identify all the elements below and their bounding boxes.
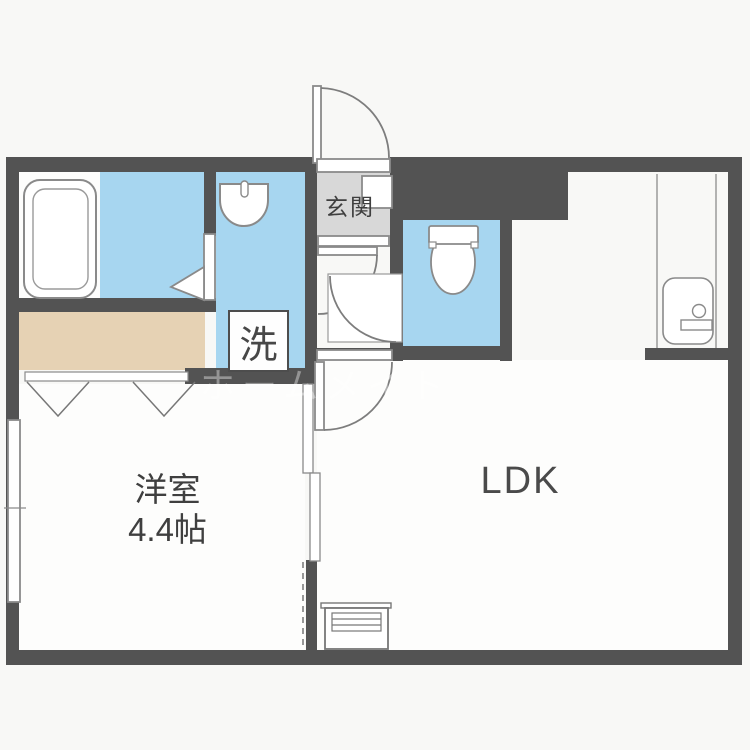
entrance-door-swing-arc bbox=[321, 88, 389, 159]
bathtub-icon bbox=[24, 180, 96, 298]
watermark: ホームメイト bbox=[200, 358, 451, 409]
western-room-label: 洋室 4.4帖 bbox=[95, 468, 240, 552]
western-room-size: 4.4帖 bbox=[128, 510, 207, 550]
toilet-tab-right bbox=[471, 242, 478, 248]
window bbox=[8, 420, 20, 602]
western-room-name: 洋室 bbox=[135, 470, 201, 510]
closet-folding-door-2 bbox=[133, 382, 195, 416]
bathroom-door-swing bbox=[171, 267, 204, 300]
hall-door-leaf bbox=[318, 247, 377, 255]
floor-plan: 玄関 洗 洋室 4.4帖 LDK ホームメイト bbox=[0, 0, 750, 750]
entrance-door-leaf bbox=[313, 86, 321, 163]
kitchen-sink-tray bbox=[681, 320, 712, 330]
ldk-label: LDK bbox=[458, 455, 583, 507]
toilet-tank bbox=[429, 226, 478, 244]
closet-door-track bbox=[25, 372, 188, 381]
genkan-label: 玄関 bbox=[317, 174, 383, 236]
genkan-step bbox=[318, 236, 389, 246]
panel-heater-icon bbox=[325, 608, 388, 649]
bathroom-door-leaf bbox=[204, 234, 215, 300]
entrance-doorway bbox=[317, 159, 390, 172]
washbasin-tap bbox=[241, 181, 248, 197]
closet-folding-door-1 bbox=[27, 382, 89, 416]
sliding-door-panel-2 bbox=[310, 473, 320, 561]
toilet-tab-left bbox=[429, 242, 436, 248]
